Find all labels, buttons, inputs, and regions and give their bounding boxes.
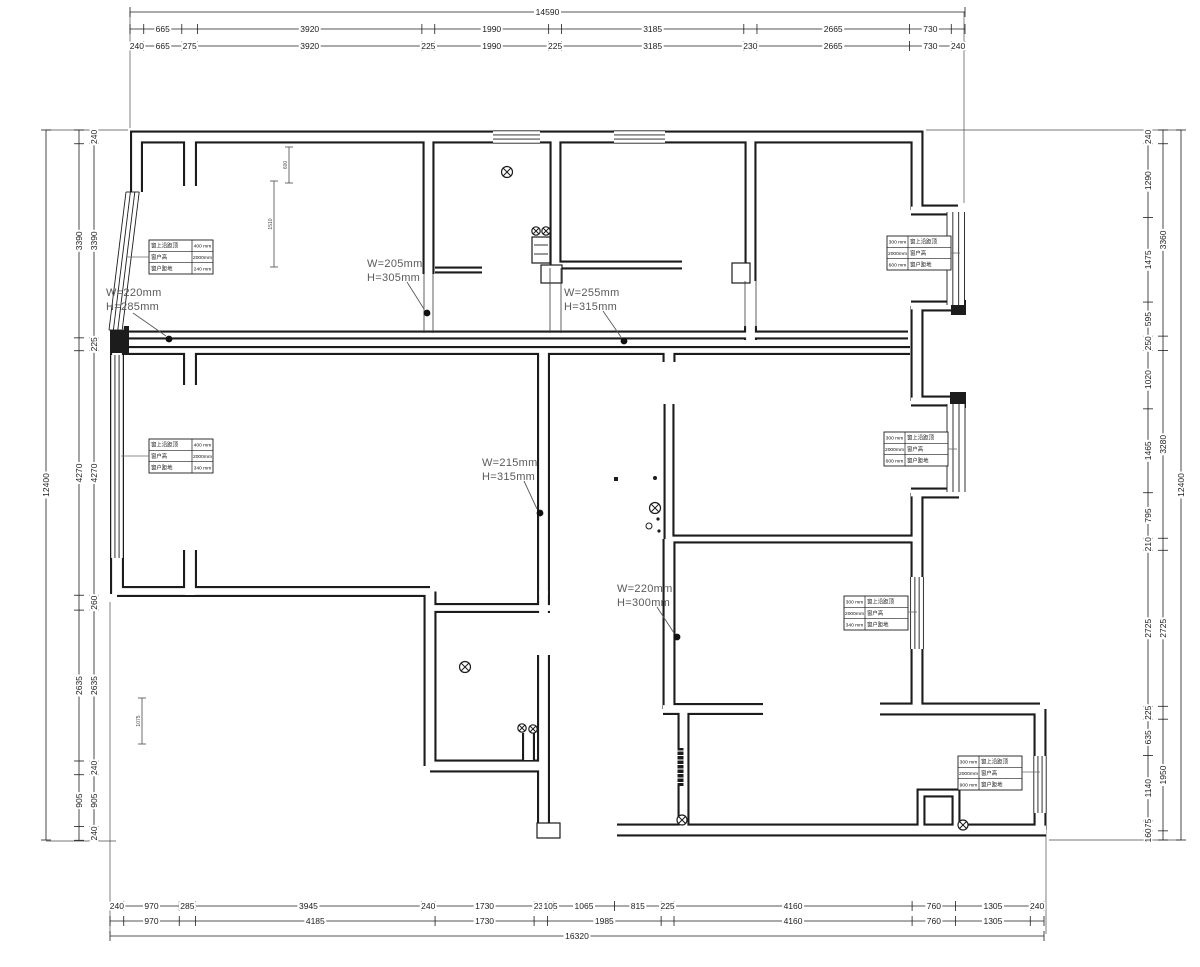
dimension-label: 250 xyxy=(1143,336,1153,350)
dimension-label: 14590 xyxy=(536,7,560,17)
dimension-label: 4185 xyxy=(306,916,325,926)
spec-row-value: 300 mm xyxy=(846,600,864,606)
dimension-label: 260 xyxy=(89,595,99,609)
spec-row-value: 600 mm xyxy=(889,262,907,268)
beam-point-dot xyxy=(537,510,544,517)
dimension-label: 160 xyxy=(1143,828,1153,842)
window-bottom-right xyxy=(1034,756,1046,813)
spec-row-label: 窗上沿距顶 xyxy=(907,434,935,442)
dimension-label: 905 xyxy=(89,793,99,807)
spec-row-label: 窗上沿距顶 xyxy=(151,441,179,449)
dimension-label: 240 xyxy=(89,760,99,774)
spec-row-label: 窗上沿距顶 xyxy=(867,598,895,606)
spec-row-label: 窗上沿距顶 xyxy=(981,758,1009,766)
dimension-label: 665 xyxy=(156,41,170,51)
dimension-label: 1730 xyxy=(475,916,494,926)
spec-row-value: 2000mm xyxy=(888,251,907,257)
dimension-label: 240 xyxy=(951,41,965,51)
dimension-label: 12400 xyxy=(41,473,51,497)
bay-window-mid-right xyxy=(947,404,965,492)
dimension-label: 635 xyxy=(1143,730,1153,744)
beam-size-label: W=205mm xyxy=(367,258,423,270)
point-marker xyxy=(653,476,657,480)
floor-plan-drawing: 1459066539201990318526657302406652753920… xyxy=(0,0,1200,967)
wall xyxy=(137,137,918,210)
dimension-label: 815 xyxy=(631,901,645,911)
dimension-label: 16320 xyxy=(565,931,589,941)
spec-row-value: 240 mm xyxy=(194,266,212,272)
dimension-label: 3920 xyxy=(300,24,319,34)
dimension-label: 225 xyxy=(421,41,435,51)
dimension-label: 285 xyxy=(180,901,194,911)
dimension-label: 3390 xyxy=(74,231,84,250)
dimension-label: 1140 xyxy=(1143,779,1153,798)
spec-row-value: 2000mm xyxy=(193,255,212,261)
dimension-label: 275 xyxy=(183,41,197,51)
dimension-label: 1020 xyxy=(1143,370,1153,389)
window-top-2 xyxy=(614,131,665,143)
dimension-label: 225 xyxy=(89,337,99,351)
dimension-label: 12400 xyxy=(1176,473,1186,497)
dimension-label: 2635 xyxy=(89,676,99,695)
spec-row-value: 2000mm xyxy=(193,454,212,460)
wall-block xyxy=(532,237,550,263)
beam-point-dot xyxy=(621,338,628,345)
spec-row-label: 窗户距地 xyxy=(981,780,1003,788)
dimension-label: 760 xyxy=(927,916,941,926)
spec-row-label: 窗户高 xyxy=(907,445,924,453)
beam-size-label: W=255mm xyxy=(564,287,620,299)
dimension-label: 595 xyxy=(1143,312,1153,326)
interior-dim-label: 600 xyxy=(283,161,289,170)
dimension-label: 905 xyxy=(74,793,84,807)
dimension-label: 3390 xyxy=(89,231,99,250)
spec-row-value: 300 mm xyxy=(889,240,907,246)
point-marker xyxy=(656,517,659,520)
window-top-1 xyxy=(493,131,540,143)
spec-row-value: 400 mm xyxy=(194,443,212,449)
spec-row-value: 2000mm xyxy=(885,447,904,453)
beam-size-label: W=220mm xyxy=(617,583,673,595)
beam-point-dot xyxy=(674,634,681,641)
spec-row-label: 窗户距地 xyxy=(151,264,173,272)
spec-row-label: 窗户高 xyxy=(981,769,998,777)
dimension-label: 2665 xyxy=(824,24,843,34)
wall-block xyxy=(537,823,560,838)
beam-size-label: H=315mm xyxy=(564,301,617,313)
dimension-label: 225 xyxy=(548,41,562,51)
dimension-label: 1985 xyxy=(595,916,614,926)
dimension-label: 970 xyxy=(144,916,158,926)
dimension-label: 240 xyxy=(421,901,435,911)
dimension-label: 3185 xyxy=(643,24,662,34)
dimension-label: 1465 xyxy=(1143,441,1153,460)
dimension-label: 4270 xyxy=(89,463,99,482)
spec-row-label: 窗上沿距顶 xyxy=(910,238,938,246)
dimension-label: 240 xyxy=(89,826,99,840)
spec-row-label: 窗上沿距顶 xyxy=(151,242,179,250)
dimension-label: 4270 xyxy=(74,463,84,482)
dimension-label: 240 xyxy=(110,901,124,911)
point-marker xyxy=(614,477,618,481)
spec-row-label: 窗户高 xyxy=(151,253,168,261)
spec-row-value: 2000mm xyxy=(845,611,864,617)
dimension-label: 1730 xyxy=(475,901,494,911)
dimension-label: 240 xyxy=(1030,901,1044,911)
dimension-label: 3360 xyxy=(1158,230,1168,249)
dimension-label: 225 xyxy=(1143,705,1153,719)
spec-row-label: 窗户距地 xyxy=(910,260,932,268)
window-right-lower xyxy=(911,577,924,649)
point-marker xyxy=(646,523,652,529)
beam-size-label: H=315mm xyxy=(482,471,535,483)
spec-row-label: 窗户高 xyxy=(151,452,168,460)
spec-row-label: 窗户距地 xyxy=(151,463,173,471)
dimension-label: 1290 xyxy=(1143,171,1153,190)
spec-row-value: 900 mm xyxy=(960,782,978,788)
wall-cavity xyxy=(137,137,918,210)
beam-size-label: H=305mm xyxy=(367,272,420,284)
dimension-label: 210 xyxy=(1143,537,1153,551)
dimension-label: 2725 xyxy=(1158,619,1168,638)
dimension-label: 4160 xyxy=(784,901,803,911)
window-left xyxy=(111,355,123,558)
spec-row-value: 340 mm xyxy=(846,622,864,628)
interior-dim-label: 1510 xyxy=(268,218,274,229)
leader-line xyxy=(407,282,424,309)
beam-point-dot xyxy=(424,310,431,317)
dimension-label: 795 xyxy=(1143,508,1153,522)
dimension-label: 3280 xyxy=(1158,435,1168,454)
point-marker xyxy=(657,529,660,532)
spec-row-value: 600 mm xyxy=(886,458,904,464)
dimension-label: 105 xyxy=(543,901,557,911)
spec-row-label: 窗户距地 xyxy=(907,456,929,464)
dimension-label: 1305 xyxy=(983,901,1002,911)
dimension-label: 4160 xyxy=(784,916,803,926)
dimension-label: 3945 xyxy=(299,901,318,911)
spec-row-label: 窗户距地 xyxy=(867,620,889,628)
dimension-label: 665 xyxy=(156,24,170,34)
door-strip xyxy=(678,748,684,786)
leader-line xyxy=(524,481,537,509)
dimension-label: 1065 xyxy=(575,901,594,911)
spec-row-label: 窗户高 xyxy=(867,609,884,617)
beam-size-label: W=220mm xyxy=(106,287,162,299)
spec-row-value: 300 mm xyxy=(886,436,904,442)
dimension-label: 1950 xyxy=(1158,765,1168,784)
dimension-label: 2725 xyxy=(1143,619,1153,638)
spec-row-value: 340 mm xyxy=(194,465,212,471)
dimension-label: 1990 xyxy=(482,24,501,34)
dimension-label: 730 xyxy=(923,41,937,51)
wall-block xyxy=(732,263,750,283)
dimension-label: 1990 xyxy=(482,41,501,51)
dimension-label: 1305 xyxy=(983,916,1002,926)
dimension-label: 3185 xyxy=(643,41,662,51)
beam-size-label: H=285mm xyxy=(106,301,159,313)
spec-row-label: 窗户高 xyxy=(910,249,927,257)
beam-size-label: H=300mm xyxy=(617,597,670,609)
dimension-label: 225 xyxy=(660,901,674,911)
dimension-label: 760 xyxy=(927,901,941,911)
dimension-label: 240 xyxy=(130,41,144,51)
dimension-label: 970 xyxy=(144,901,158,911)
interior-dim-label: 1075 xyxy=(136,715,142,726)
dimension-label: 2665 xyxy=(824,41,843,51)
beam-point-dot xyxy=(166,336,173,343)
dimension-label: 230 xyxy=(743,41,757,51)
spec-row-value: 400 mm xyxy=(194,244,212,250)
dimension-label: 240 xyxy=(1143,130,1153,144)
dimension-label: 730 xyxy=(923,24,937,34)
dimension-label: 2635 xyxy=(74,676,84,695)
beam-size-label: W=215mm xyxy=(482,457,538,469)
dimension-label: 240 xyxy=(89,130,99,144)
wall-block xyxy=(541,265,562,283)
floorplan-sheet: 1459066539201990318526657302406652753920… xyxy=(0,0,1200,967)
spec-row-value: 2000mm xyxy=(959,771,978,777)
dimension-label: 1475 xyxy=(1143,250,1153,269)
spec-row-value: 300 mm xyxy=(960,760,978,766)
dimension-label: 3920 xyxy=(300,41,319,51)
